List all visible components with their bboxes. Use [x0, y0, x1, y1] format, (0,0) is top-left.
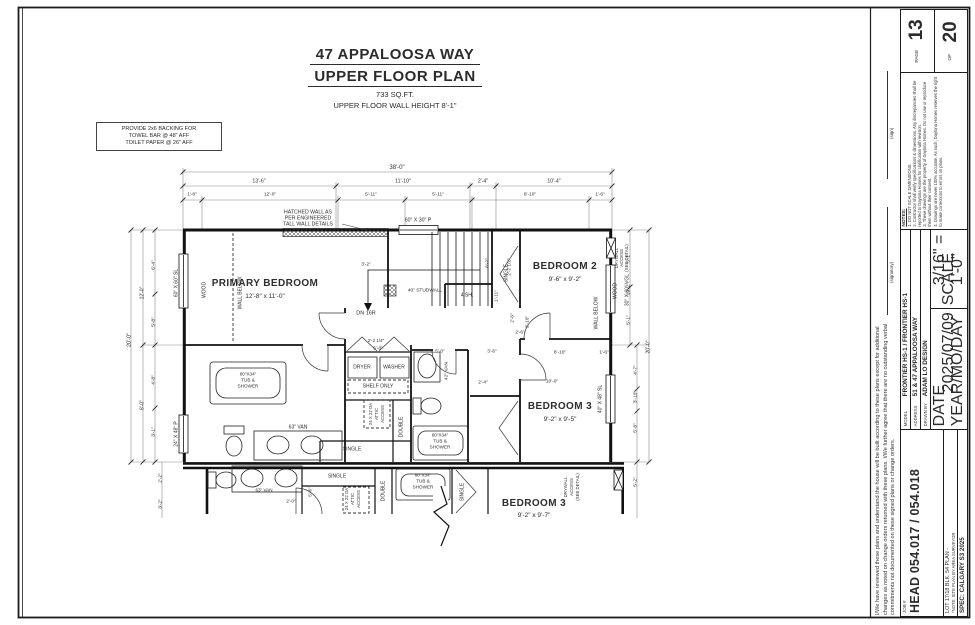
plan-annotation: 3'-2" — [361, 264, 371, 269]
plan-annotation: 4'-7" — [635, 365, 640, 375]
note-item: 4. Drawings are never 100% accurate. As … — [933, 75, 943, 227]
plan-annotation: 5'-8" — [373, 348, 383, 353]
plan-annotation: 5'-2" — [635, 477, 640, 487]
plan-annotation: 8'-0" — [141, 400, 146, 410]
plan-annotation: 2'-6" — [512, 313, 517, 323]
plan-annotation: TUB & — [241, 379, 255, 384]
plan-annotation: 5'-11" — [432, 194, 444, 199]
plan-annotation: 24 X 22 OA — [345, 488, 349, 510]
signatory-label: (signatory) — [889, 262, 894, 283]
plan-annotation: 11'-10" — [395, 179, 411, 184]
plan-annotation: SINGLE — [343, 448, 361, 453]
page-number: 13 — [906, 19, 928, 40]
titleblock-job-section: JOB # HEAD 054.017 / 054.018 LOT 17/18 B… — [901, 430, 967, 616]
room-dims-bedroom-3: 9'-2" x 9'-5" — [544, 417, 577, 424]
notes-list: 1. DO NOT SCALE DIMENSIONS.2. Contractor… — [907, 75, 943, 227]
plan-annotation: 24" X 48" P — [175, 421, 180, 447]
plan-annotation: 12'-0" — [141, 287, 146, 300]
plan-annotation: 10'-0" — [546, 381, 558, 386]
plan-annotation: WALL BELOW — [595, 297, 600, 330]
plan-annotation: DOUBLE — [382, 481, 387, 502]
titleblock-fields-section: MODEL FRONTIER HS-1 / FRONTIER HS-1 ADDR… — [901, 230, 967, 431]
plan-annotation: 8'-10" — [524, 194, 536, 199]
plan-annotation: 12'-0" — [264, 194, 276, 199]
plan-annotation: 1'-6" — [599, 352, 609, 357]
lot-note: *NOTE: SITE PLAN BY AREA SURVEYOR — [951, 433, 956, 613]
plan-annotation: 5'-1" — [628, 315, 633, 325]
plan-annotation: 3'-2" — [160, 499, 165, 509]
plan-annotation: 5'-6" — [310, 487, 315, 497]
room-dims-bedroom-2: 9'-6" x 9'-2" — [549, 277, 582, 284]
plan-annotation: SINGLE — [328, 475, 346, 480]
plan-annotation: TALL WALL DETAILS — [283, 222, 333, 227]
plan-annotation: 20'-0" — [646, 340, 651, 353]
plan-annotation: SHOWER — [238, 385, 259, 390]
dim-overall-depth: 20'-0" — [127, 333, 133, 347]
plan-annotation: 3'-6" — [487, 351, 497, 356]
plan-annotation: 1'-6" — [595, 194, 605, 199]
plan-annotation: 10'-4" — [547, 179, 560, 184]
plan-annotation: TUB & — [416, 480, 430, 485]
plan-annotation: DRYER — [353, 366, 370, 371]
plan-annotation: 1'-8" — [187, 194, 197, 199]
plan-annotation: 2'-0" — [286, 501, 296, 506]
plan-annotation: WASHER — [383, 366, 405, 371]
plan-annotation: ATTIC — [375, 408, 379, 420]
plan-annotation: WALL BELOW — [239, 277, 244, 310]
room-dims-bedroom-3-lower: 9'-2" x 9'-7" — [518, 513, 551, 520]
model-value: FRONTIER HS-1 / FRONTIER HS-1 — [902, 293, 909, 396]
plan-annotation: 60" X 60" SL — [175, 269, 180, 297]
plan-annotation: 13'-6" — [252, 179, 265, 184]
job-number-label: JOB # — [902, 433, 907, 613]
plan-annotation: 60"X34" — [240, 373, 257, 378]
of-label: OF — [948, 54, 953, 61]
plan-annotation: 60"X34" — [432, 434, 449, 439]
drawn-by-label: DRAWN BY — [923, 396, 928, 426]
signatory-line[interactable] — [875, 207, 888, 315]
plan-annotation: 2'-2 1/4" — [368, 339, 384, 344]
plan-annotation: 2'-6" — [515, 332, 525, 337]
plan-annotation: TUB & — [433, 440, 447, 445]
drawn-by-value: ADAM LO DESIGN — [922, 340, 929, 396]
annotation-layer: PRIMARY BEDROOM12'-8" x 11'-0"BEDROOM 29… — [0, 0, 975, 625]
room-label-primary-bedroom: PRIMARY BEDROOM — [212, 279, 319, 289]
plan-annotation: 60"X34" — [415, 474, 432, 479]
scale-label: SCALE — [940, 285, 958, 305]
room-dims-primary-bedroom: 12'-8" x 11'-0" — [245, 294, 285, 301]
page-label: PAGE — [915, 50, 920, 63]
plan-annotation: 3'-10" — [635, 391, 640, 403]
titleblock-grid: JOB # HEAD 054.017 / 054.018 LOT 17/18 B… — [900, 9, 968, 617]
plan-annotation: SHOWER — [430, 446, 451, 451]
plan-annotation: ATTIC — [351, 493, 355, 505]
drawing-sheet: 47 APPALOOSA WAY UPPER FLOOR PLAN 733 SQ… — [0, 0, 975, 625]
plan-annotation: 4 SH. — [461, 294, 474, 299]
plan-annotation: 2'-4" — [478, 382, 488, 387]
plan-annotation: WOOD — [203, 282, 208, 298]
job-number-value: HEAD 054.017 / 054.018 — [908, 433, 922, 613]
address-label: ADDRESS — [913, 396, 918, 426]
plan-annotation: ACCESS — [381, 405, 385, 423]
plan-annotation: 4'-8" — [153, 375, 158, 385]
plan-annotation: 60" X 30" P — [405, 218, 431, 223]
plan-annotation: WOOD — [614, 283, 619, 299]
plan-annotation: 63" VAN — [289, 426, 308, 431]
scale-value: 3/16" = 1'-0" — [931, 233, 967, 286]
plan-annotation: SHELF ONLY — [363, 385, 394, 390]
plan-annotation: 5'-8" — [635, 423, 640, 433]
plan-annotation: 2'-2" — [160, 473, 165, 483]
plan-annotation: DN 16R — [356, 311, 376, 317]
note-item: 3. These drawings are the property of Da… — [922, 75, 932, 227]
room-label-bedroom-3-lower: BEDROOM 3 — [502, 499, 566, 509]
spec-line: SPEC: CALGARY S3 2025 — [957, 430, 967, 616]
titleblock-signature-row: I/We have reviewed these plans and under… — [873, 9, 900, 617]
room-label-bedroom-3: BEDROOM 3 — [528, 402, 592, 412]
plan-annotation: DRYWALL — [564, 477, 568, 498]
plan-annotation: 6'-4" — [153, 260, 158, 270]
disclaimer-text: I/We have reviewed these plans and under… — [875, 323, 898, 615]
titleblock-page-section: PAGE 13 OF 20 — [901, 10, 967, 73]
plan-annotation: 24 X 22 OA — [369, 403, 373, 425]
plan-annotation: (SEE DETAIL) — [576, 473, 580, 500]
date-value: 2025/07/09 — [940, 312, 958, 392]
plan-annotation: 10'-2" — [628, 283, 633, 295]
plan-annotation: 5'-0" — [435, 351, 445, 356]
plan-annotation: 3'-1" — [153, 427, 158, 437]
sign-label: (sign) — [889, 128, 894, 139]
plan-annotation: 6'-2" — [487, 258, 492, 268]
plan-annotation: 40" X 48" SL — [599, 385, 604, 413]
note-item: 2. Contractor shall verify specification… — [912, 75, 922, 227]
plan-annotation: SHOWER — [413, 486, 434, 491]
plan-annotation: ACCESS — [357, 490, 361, 508]
plan-annotation: 8'-10" — [554, 352, 566, 357]
room-label-bedroom-2: BEDROOM 2 — [533, 262, 597, 272]
plan-annotation: 5'-11" — [365, 194, 377, 199]
titleblock-notes-section: NOTES: 1. DO NOT SCALE DIMENSIONS.2. Con… — [901, 73, 967, 230]
titleblock: I/We have reviewed these plans and under… — [873, 9, 968, 617]
model-label: MODEL — [903, 396, 908, 426]
sign-line[interactable] — [875, 71, 888, 179]
plan-annotation: 2'-2 1/2" — [509, 258, 514, 276]
plan-annotation: 3'-10" — [527, 316, 532, 328]
address-value: 51 & 47 APPALOOSA WAY — [912, 317, 919, 396]
plan-annotation: 1'-11" — [496, 290, 501, 302]
plan-annotation: 42" VAN — [446, 362, 451, 380]
dim-overall-width: 38'-0" — [389, 165, 404, 171]
plan-annotation: 40" STUDWALL — [408, 290, 442, 295]
plan-annotation: 5'-8" — [153, 317, 158, 327]
plan-annotation: 2'-4" — [478, 179, 488, 184]
total-pages: 20 — [940, 21, 962, 42]
plan-annotation: 5'-1" — [628, 253, 633, 263]
plan-annotation: DOUBLE — [400, 417, 405, 438]
plan-annotation: 63" VAN — [255, 489, 272, 494]
plan-annotation: ACCESS — [570, 478, 574, 496]
plan-annotation: SINGLE — [461, 483, 466, 501]
